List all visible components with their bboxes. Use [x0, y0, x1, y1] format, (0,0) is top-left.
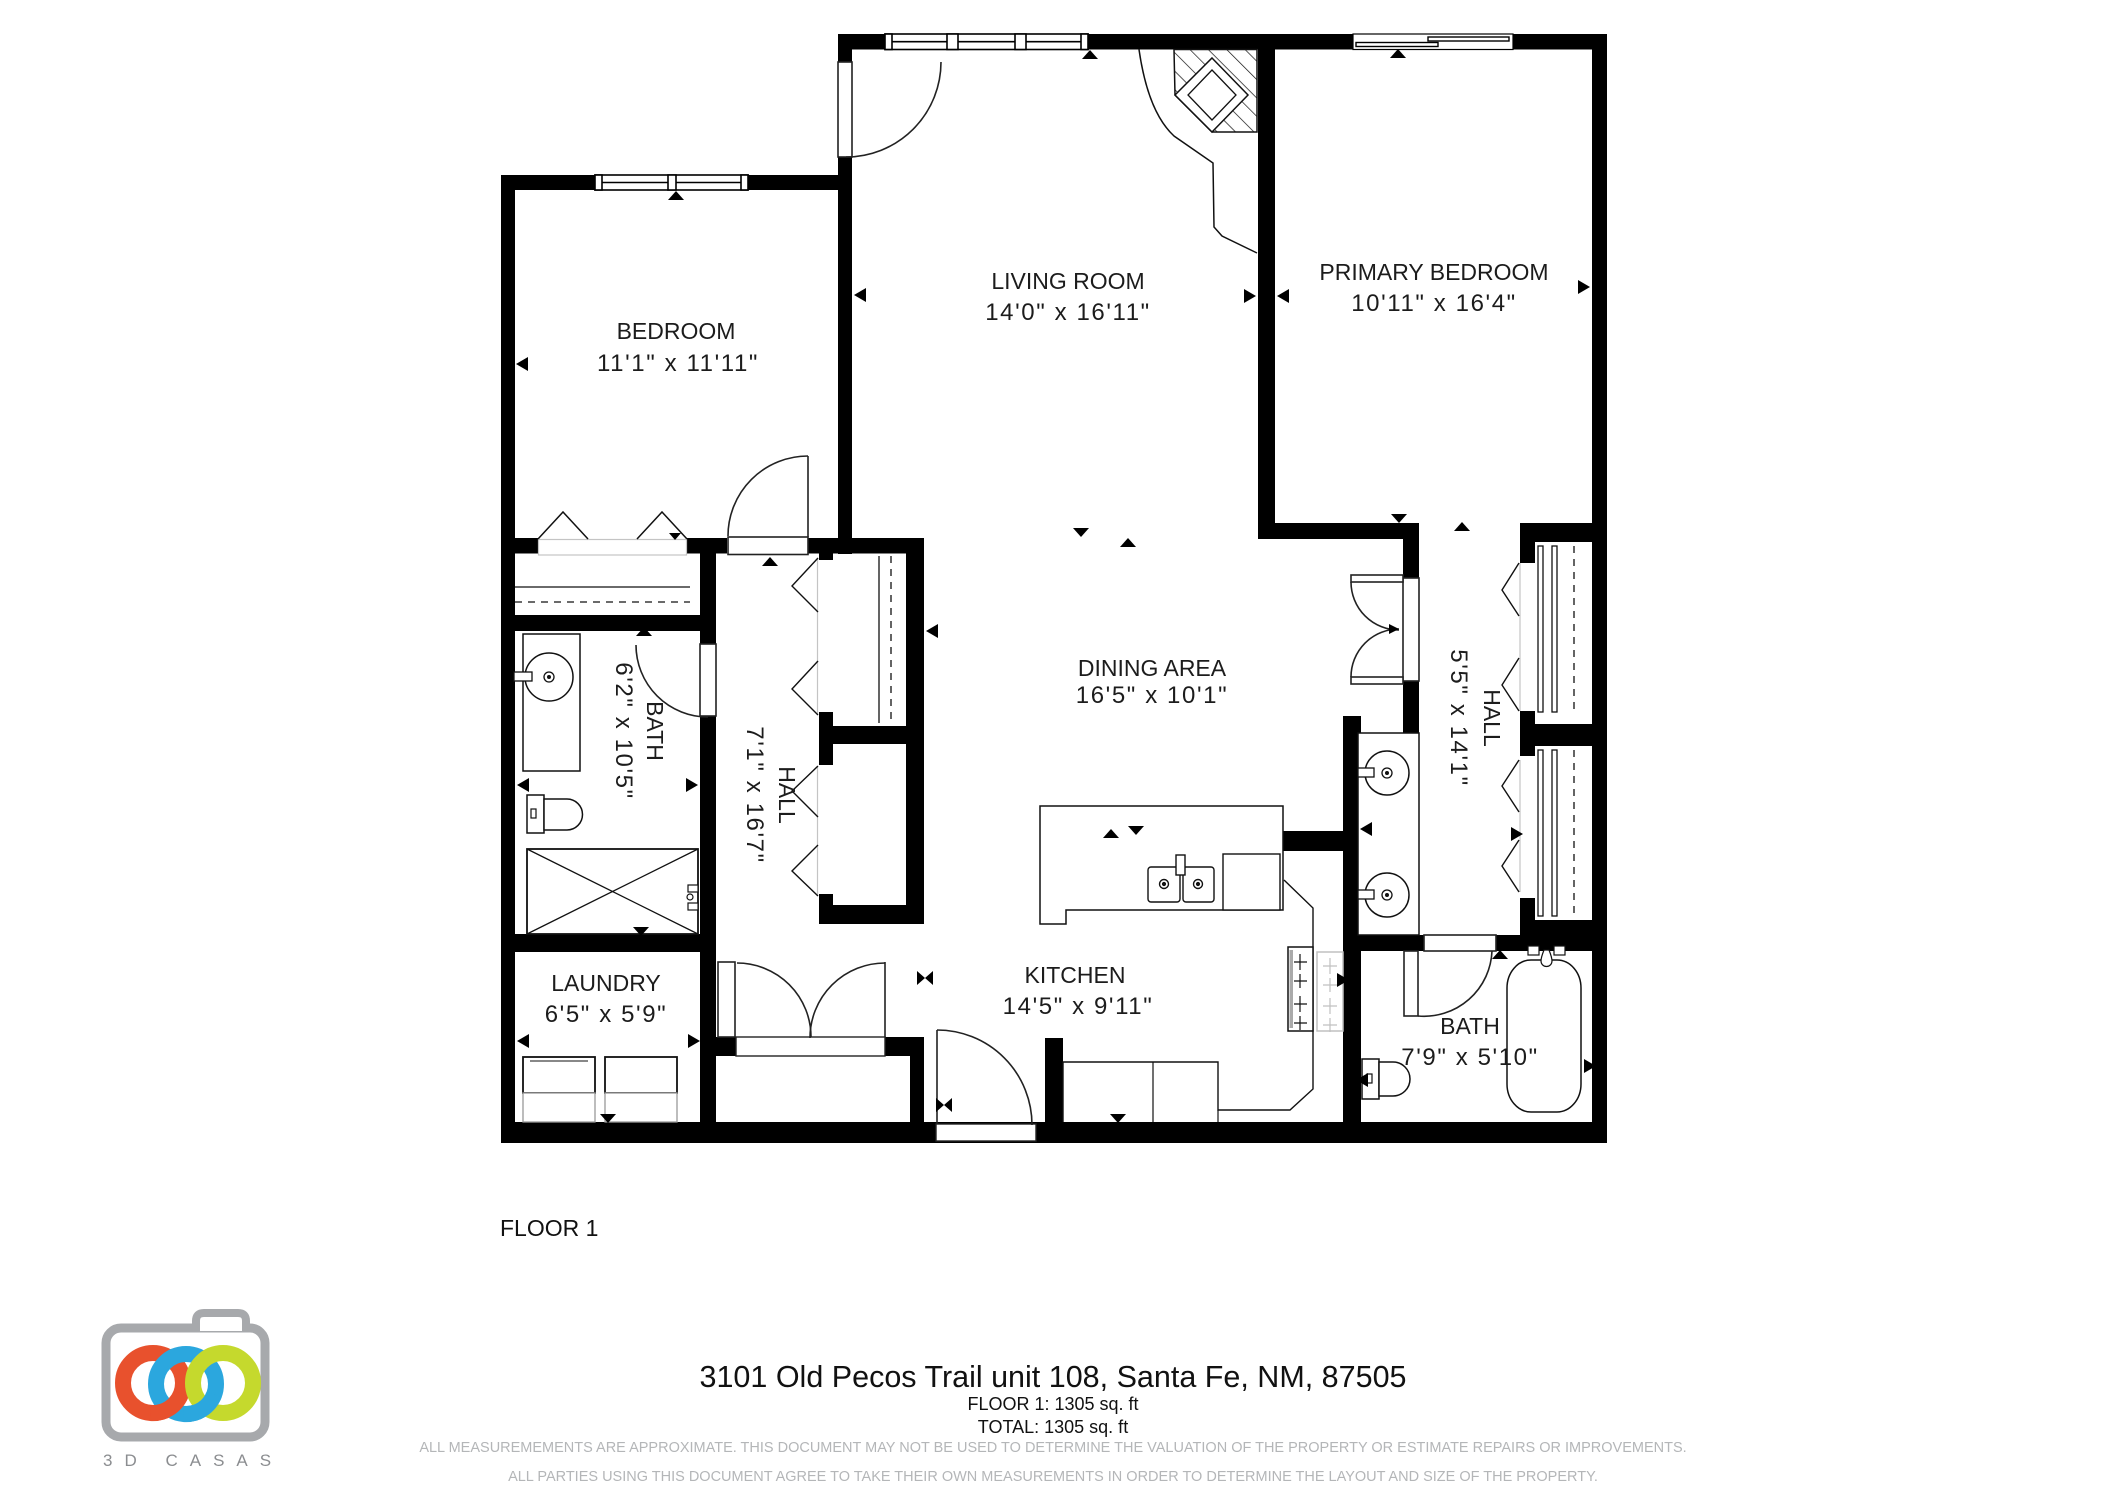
svg-text:BEDROOM: BEDROOM [617, 318, 736, 344]
svg-text:3D CASAS: 3D CASAS [103, 1451, 283, 1470]
svg-text:BATH: BATH [642, 701, 668, 761]
svg-text:6'5" x 5'9": 6'5" x 5'9" [545, 1001, 668, 1028]
svg-text:7'1" x 16'7": 7'1" x 16'7" [741, 726, 768, 863]
svg-text:KITCHEN: KITCHEN [1025, 962, 1126, 988]
svg-text:3101 Old Pecos Trail unit 108,: 3101 Old Pecos Trail unit 108, Santa Fe,… [700, 1360, 1407, 1394]
svg-text:5'5" x 14'1": 5'5" x 14'1" [1445, 649, 1472, 786]
svg-text:16'5" x 10'1": 16'5" x 10'1" [1076, 682, 1228, 709]
svg-text:HALL: HALL [1479, 689, 1505, 747]
svg-text:ALL PARTIES USING THIS DOCUMEN: ALL PARTIES USING THIS DOCUMENT AGREE TO… [508, 1469, 1598, 1485]
svg-text:14'0" x 16'11": 14'0" x 16'11" [985, 299, 1151, 326]
svg-text:10'11" x 16'4": 10'11" x 16'4" [1351, 290, 1517, 317]
svg-text:7'9" x 5'10": 7'9" x 5'10" [1401, 1044, 1538, 1071]
svg-text:LIVING ROOM: LIVING ROOM [991, 268, 1144, 294]
svg-text:FLOOR 1: FLOOR 1 [500, 1215, 598, 1241]
svg-text:FLOOR 1: 1305 sq. ft: FLOOR 1: 1305 sq. ft [967, 1394, 1138, 1414]
svg-text:DINING AREA: DINING AREA [1078, 655, 1227, 681]
svg-text:ALL MEASUREMEMENTS ARE APPROXI: ALL MEASUREMEMENTS ARE APPROXIMATE. THIS… [419, 1440, 1686, 1456]
svg-text:11'1" x 11'11": 11'1" x 11'11" [597, 350, 759, 377]
svg-text:14'5" x 9'11": 14'5" x 9'11" [1003, 993, 1154, 1020]
svg-text:6'2" x 10'5": 6'2" x 10'5" [610, 662, 637, 799]
svg-text:HALL: HALL [774, 766, 800, 824]
svg-text:PRIMARY BEDROOM: PRIMARY BEDROOM [1319, 259, 1548, 285]
svg-text:TOTAL: 1305 sq. ft: TOTAL: 1305 sq. ft [978, 1417, 1128, 1437]
svg-text:LAUNDRY: LAUNDRY [551, 970, 661, 996]
svg-text:BATH: BATH [1440, 1013, 1500, 1039]
